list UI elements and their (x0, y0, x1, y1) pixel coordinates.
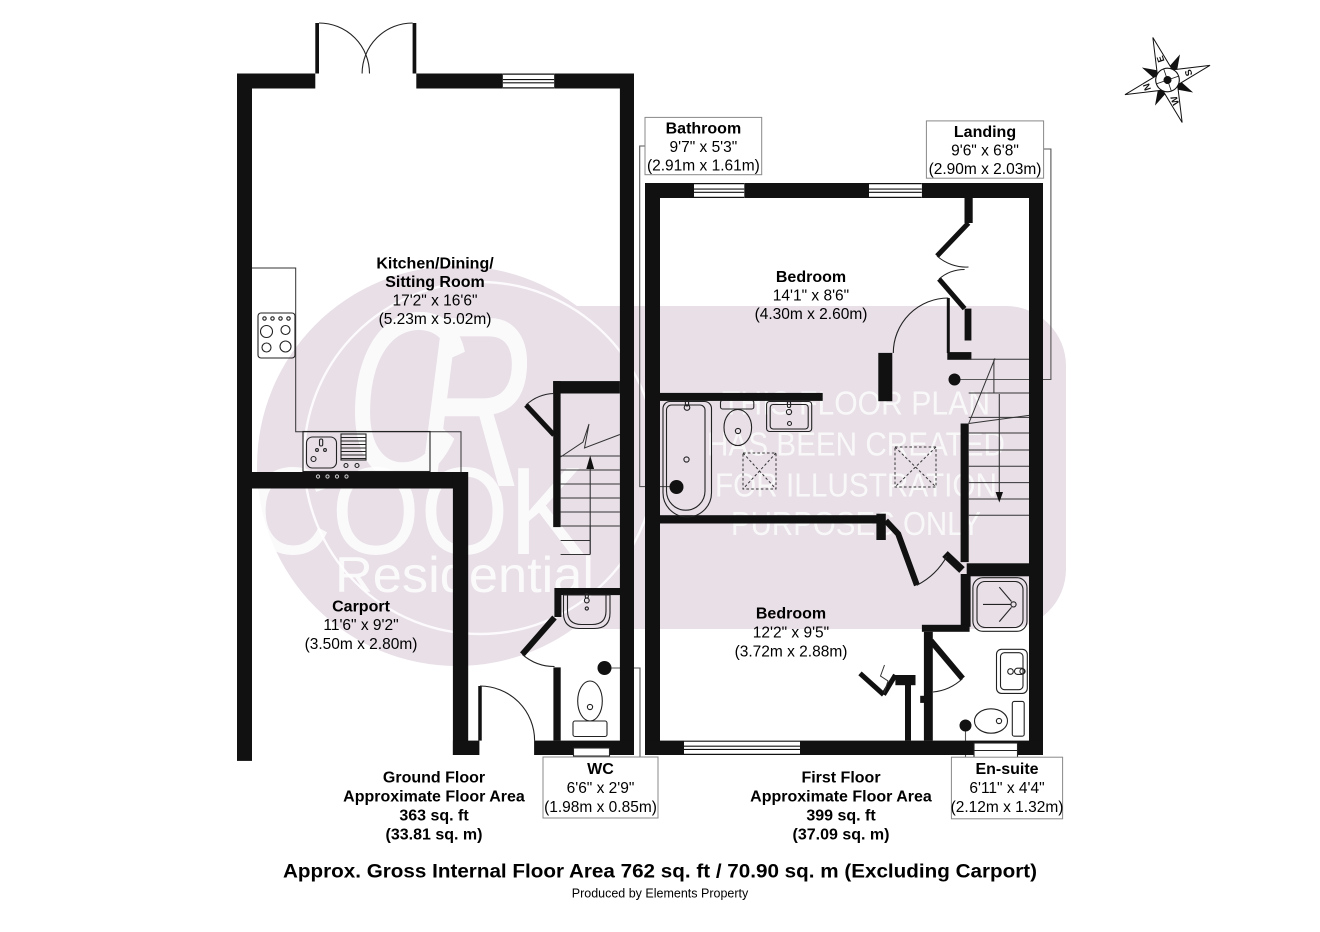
svg-text:(3.72m x 2.88m): (3.72m x 2.88m) (735, 644, 848, 661)
svg-text:363 sq. ft: 363 sq. ft (399, 808, 469, 825)
svg-text:THIS FLOOR PLAN: THIS FLOOR PLAN (722, 385, 990, 422)
svg-text:14'1" x 8'6": 14'1" x 8'6" (773, 288, 849, 305)
svg-text:(2.90m x 2.03m): (2.90m x 2.03m) (929, 161, 1042, 178)
svg-text:(37.09 sq. m): (37.09 sq. m) (793, 827, 890, 844)
svg-text:Carport: Carport (332, 599, 390, 616)
svg-text:WC: WC (587, 761, 614, 778)
svg-text:Kitchen/Dining/: Kitchen/Dining/ (376, 256, 494, 273)
svg-text:Approximate Floor Area: Approximate Floor Area (343, 789, 525, 806)
svg-text:Sitting Room: Sitting Room (385, 274, 485, 291)
svg-text:399 sq. ft: 399 sq. ft (806, 808, 876, 825)
svg-text:11'6" x 9'2": 11'6" x 9'2" (323, 617, 398, 634)
svg-text:9'7" x 5'3": 9'7" x 5'3" (670, 139, 738, 156)
svg-text:6'6" x 2'9": 6'6" x 2'9" (567, 780, 635, 797)
svg-text:6'11" x 4'4": 6'11" x 4'4" (969, 780, 1044, 797)
svg-text:(5.23m x 5.02m): (5.23m x 5.02m) (379, 311, 492, 328)
svg-text:9'6" x 6'8": 9'6" x 6'8" (951, 143, 1019, 160)
svg-text:FOR ILLUSTRATION: FOR ILLUSTRATION (715, 466, 997, 503)
svg-text:Bathroom: Bathroom (666, 121, 742, 138)
svg-text:En-suite: En-suite (975, 761, 1038, 778)
svg-text:12'2" x 9'5": 12'2" x 9'5" (753, 625, 829, 642)
svg-text:Produced by Elements Property: Produced by Elements Property (572, 887, 749, 901)
svg-text:Ground Floor: Ground Floor (383, 770, 485, 787)
svg-text:(4.30m x 2.60m): (4.30m x 2.60m) (755, 306, 868, 323)
svg-text:(1.98m x 0.85m): (1.98m x 0.85m) (544, 799, 657, 816)
svg-text:(33.81 sq. m): (33.81 sq. m) (386, 827, 483, 844)
svg-text:17'2" x 16'6": 17'2" x 16'6" (392, 293, 477, 310)
svg-text:(2.91m x 1.61m): (2.91m x 1.61m) (647, 158, 760, 175)
svg-text:Bedroom: Bedroom (776, 269, 846, 286)
svg-text:First Floor: First Floor (801, 770, 880, 787)
svg-text:Approximate Floor Area: Approximate Floor Area (750, 789, 932, 806)
svg-text:(3.50m x 2.80m): (3.50m x 2.80m) (305, 636, 418, 653)
svg-text:Approx. Gross Internal Floor A: Approx. Gross Internal Floor Area 762 sq… (283, 861, 1037, 883)
svg-text:Landing: Landing (954, 124, 1016, 141)
svg-text:(2.12m x 1.32m): (2.12m x 1.32m) (951, 799, 1064, 816)
svg-text:Bedroom: Bedroom (756, 606, 826, 623)
